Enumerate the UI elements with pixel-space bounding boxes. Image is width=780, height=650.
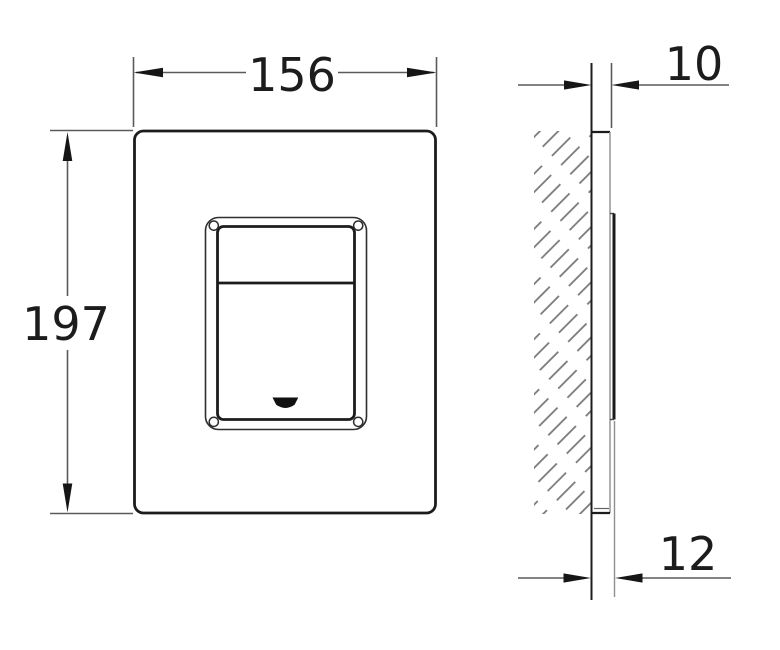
height-dimension: 197 (22, 131, 133, 514)
button-corner-top-right (354, 221, 363, 230)
height-dimension-label: 197 (22, 297, 110, 351)
wall-hatching (534, 131, 591, 514)
front-view: 156 197 (22, 48, 436, 514)
logo-mark (273, 398, 299, 409)
width-arrow-right (407, 68, 437, 78)
side-view: 10 12 (518, 37, 731, 600)
button-depth-arrow-left (564, 573, 592, 582)
plate-depth-arrow-left (564, 80, 592, 89)
width-arrow-left (134, 68, 164, 78)
button-face-outline (218, 227, 355, 420)
plate-outline (135, 131, 436, 513)
button-depth-label: 12 (659, 527, 718, 581)
height-arrow-top (63, 132, 73, 161)
height-arrow-bottom (63, 484, 73, 513)
drawing-canvas: 156 197 (0, 0, 780, 650)
plate-side-profile (592, 132, 611, 513)
button-corner-top-left (209, 221, 218, 230)
button-corner-bottom-left (209, 417, 218, 426)
button-depth-arrow-right (615, 573, 643, 582)
plate-depth-dimension: 10 (518, 37, 729, 128)
button-corner-bottom-right (354, 417, 363, 426)
technical-drawing: 156 197 (0, 0, 780, 650)
plate-depth-arrow-right (612, 80, 640, 89)
width-dimension-label: 156 (248, 48, 336, 102)
width-dimension: 156 (134, 48, 437, 127)
plate-depth-label: 10 (665, 37, 724, 91)
